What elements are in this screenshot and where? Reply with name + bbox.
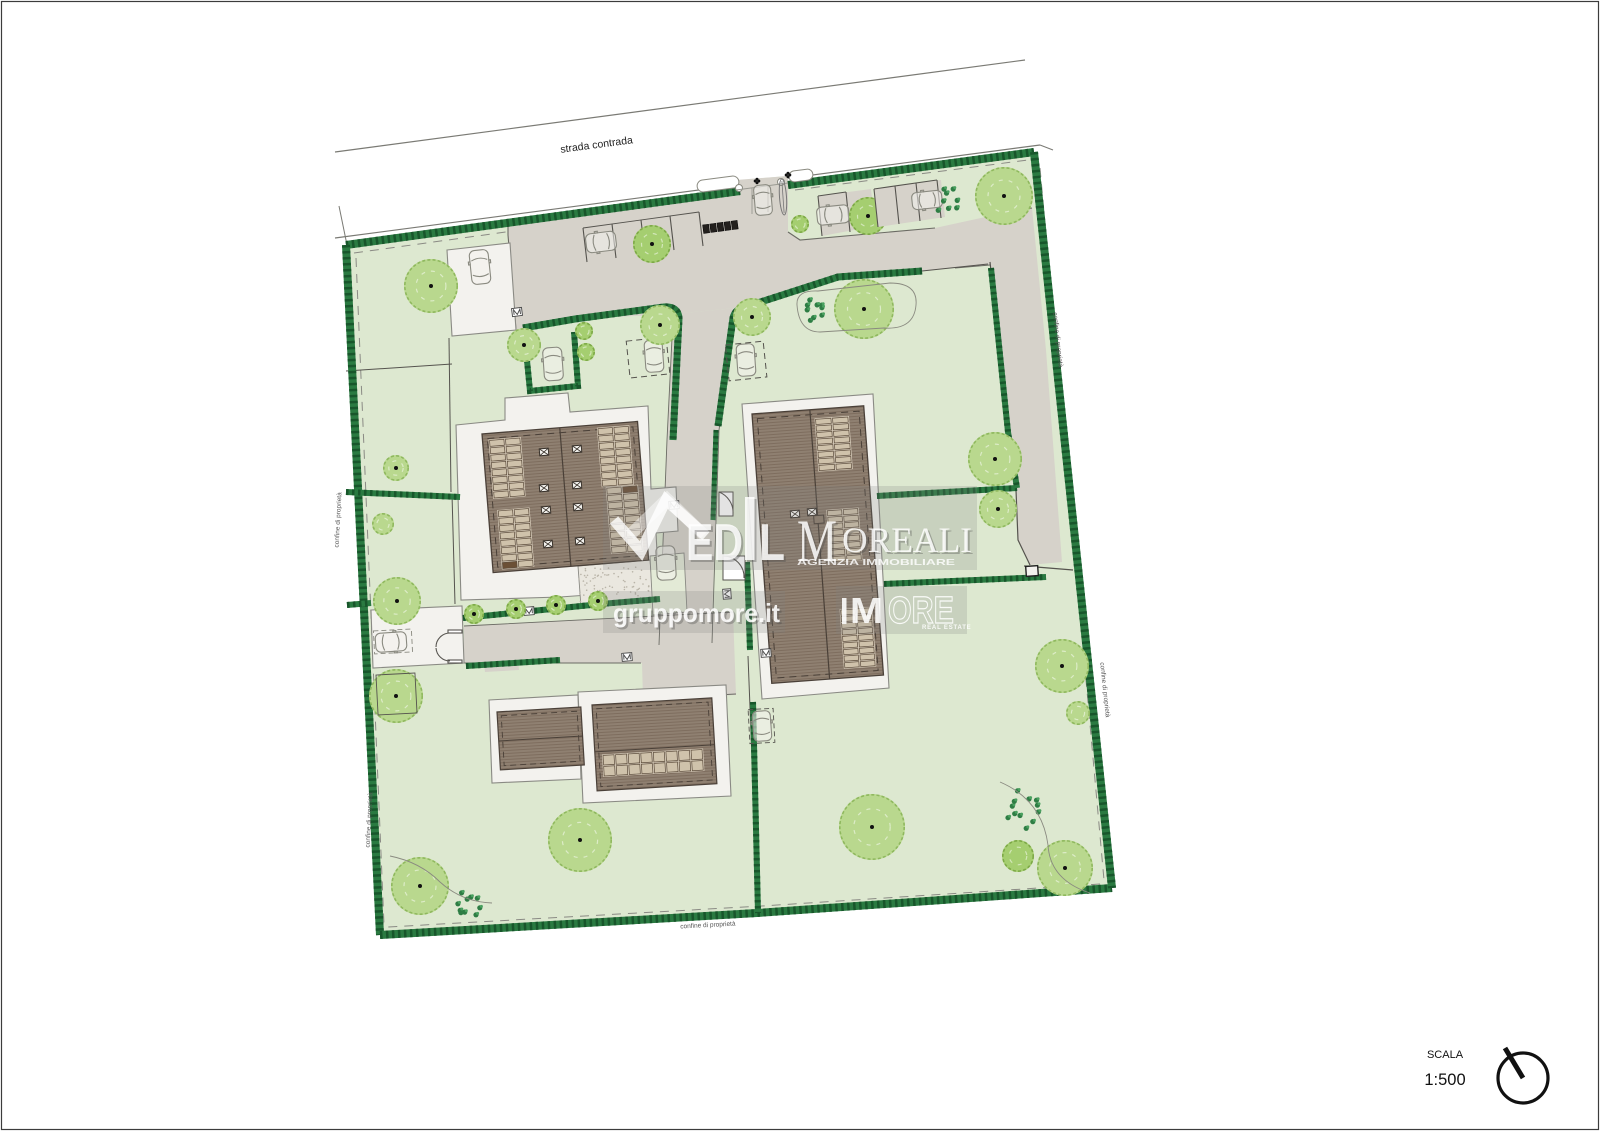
svg-text:SCALA: SCALA (1427, 1049, 1464, 1061)
svg-text:gruppomore.it: gruppomore.it (613, 598, 780, 628)
svg-text:L: L (759, 514, 785, 572)
svg-text:REAL ESTATE: REAL ESTATE (922, 625, 971, 631)
svg-text:AGENZIA IMMOBILIARE: AGENZIA IMMOBILIARE (797, 557, 956, 567)
svg-text:M: M (850, 590, 883, 631)
svg-text:ED: ED (686, 514, 743, 572)
svg-text:1:500: 1:500 (1424, 1071, 1465, 1089)
svg-text:OREALI: OREALI (842, 520, 972, 560)
